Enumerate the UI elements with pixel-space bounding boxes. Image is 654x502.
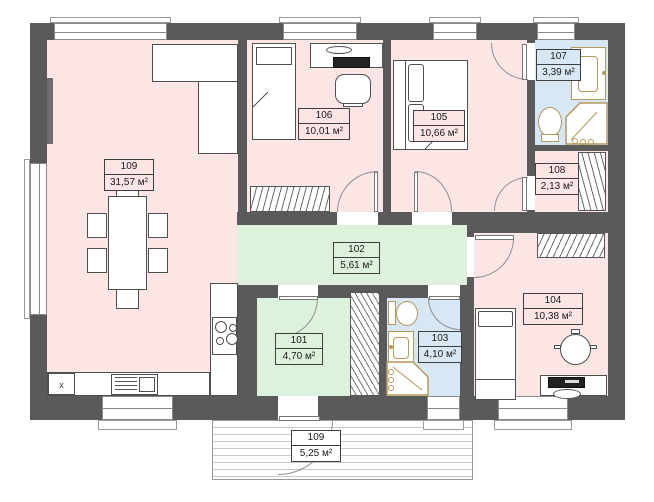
pot-lid-knob [571, 329, 580, 334]
door-leaf-104 [475, 235, 514, 240]
dining-chair [87, 213, 107, 238]
room-label-porch: 109 5,25 м² [291, 430, 341, 462]
room-number: 109 [105, 160, 153, 175]
basin-tap-103 [389, 345, 393, 349]
room-label-108: 108 2,13 м² [535, 163, 579, 195]
sill-107-top [533, 17, 579, 23]
door-leaf-108 [522, 177, 527, 211]
pot-boiler [560, 334, 591, 365]
room-area: 31,57 м² [105, 175, 153, 190]
room-area: 5,25 м² [292, 446, 340, 461]
room-number: 107 [537, 50, 580, 65]
kitchen-x-box: x [48, 373, 75, 395]
room-number: 108 [536, 164, 578, 179]
corner-shower-103 [386, 361, 429, 397]
sink-basin [139, 377, 155, 392]
pillow-105 [408, 64, 424, 102]
wardrobe-108 [578, 152, 606, 211]
dining-chair [116, 289, 139, 309]
window-106-top [283, 23, 357, 40]
room-label-102: 102 5,61 м² [333, 242, 380, 274]
room-label-103: 103 4,10 м² [418, 331, 462, 363]
office-chair-base [343, 103, 363, 107]
room-area: 2,13 м² [536, 179, 578, 194]
room-area: 10,66 м² [414, 126, 464, 141]
room-number: 102 [334, 243, 379, 258]
wardrobe-104 [537, 233, 605, 258]
sill-kitchen-bottom [98, 420, 177, 430]
printer [333, 57, 370, 68]
room-number: 101 [276, 334, 322, 349]
bed-105-headboard [405, 60, 406, 150]
window-105-top [433, 23, 477, 40]
wardrobe-101 [350, 292, 380, 396]
dining-chair [148, 248, 168, 273]
toilet-tank-103 [388, 301, 396, 325]
room-area: 10,01 м² [299, 124, 349, 139]
pillow-106 [256, 47, 292, 65]
sill-104-bottom [494, 420, 572, 430]
pot-handle [554, 345, 561, 349]
desk-lamp [326, 46, 352, 54]
room-number: 109 [292, 431, 340, 446]
basin-tap-107 [602, 71, 606, 75]
pillow-104 [478, 311, 513, 327]
wardrobe-106 [250, 186, 330, 212]
room-area: 5,61 м² [334, 258, 379, 273]
door-opening-108 [527, 176, 535, 210]
door-leaf-101 [279, 296, 318, 300]
door-leaf-103 [429, 296, 460, 300]
dishwasher-lines [115, 377, 137, 392]
appliance-display [565, 380, 579, 383]
corner-shower-107 [565, 102, 608, 146]
window-living-top [54, 23, 167, 40]
door-leaf-105 [414, 172, 418, 212]
dining-table [108, 196, 147, 290]
sill-103-bottom [423, 420, 464, 430]
room-number: 103 [419, 332, 461, 347]
stove-burner [226, 333, 238, 345]
tv-panel [47, 78, 53, 144]
door-opening-106 [337, 212, 378, 225]
window-107-top [537, 23, 575, 40]
sill-106-top [279, 17, 361, 23]
stove-burner [216, 337, 224, 345]
stove-burner [229, 324, 237, 332]
door-leaf-107 [522, 44, 527, 80]
room-label-105: 105 10,66 м² [413, 110, 465, 142]
stove-burner [215, 321, 227, 333]
sill-living-left [24, 159, 30, 319]
room-number: 106 [299, 109, 349, 124]
plate-104 [553, 389, 581, 399]
room-number: 105 [414, 111, 464, 126]
room-number: 104 [524, 294, 582, 309]
blanket-fold-106 [253, 92, 268, 107]
dining-chair [87, 248, 107, 273]
toilet-tank-107 [541, 134, 559, 142]
office-chair [335, 74, 371, 104]
pot-handle [590, 345, 597, 349]
sofa-top-section [152, 44, 238, 82]
wall-living-106 [238, 40, 247, 212]
floor-plan: x [0, 0, 654, 502]
room-area: 3,39 м² [537, 65, 580, 80]
wall-106-105 [383, 40, 391, 212]
room-label-109: 109 31,57 м² [104, 159, 154, 191]
room-label-104: 104 10,38 м² [523, 293, 583, 325]
wall-104-north [467, 212, 625, 233]
wall-living-101 [238, 285, 257, 396]
dining-chair [148, 213, 168, 238]
room-label-106: 106 10,01 м² [298, 108, 350, 140]
door-opening-107 [527, 43, 535, 80]
sill-living-top [50, 17, 171, 23]
wall-103-104 [460, 285, 474, 396]
room-area: 10,38 м² [524, 309, 582, 324]
room-label-107: 107 3,39 м² [536, 49, 581, 81]
toilet-107 [538, 107, 562, 137]
room-area: 4,10 м² [419, 347, 461, 362]
door-opening-105 [412, 212, 452, 225]
room-label-101: 101 4,70 м² [275, 333, 323, 365]
sill-105-top [429, 17, 481, 23]
door-opening-104 [467, 237, 474, 277]
window-living-left [30, 163, 47, 315]
door-leaf-entrance [279, 416, 320, 421]
window-103-bottom [427, 396, 460, 420]
washbasin-107 [578, 56, 598, 92]
bed-104-footline [475, 379, 516, 380]
washbasin-103 [393, 337, 409, 359]
toilet-103 [396, 301, 418, 326]
door-leaf-106 [374, 172, 378, 212]
window-kitchen-bottom [102, 396, 173, 420]
room-area: 4,70 м² [276, 349, 322, 364]
sofa-right-section [198, 81, 238, 154]
